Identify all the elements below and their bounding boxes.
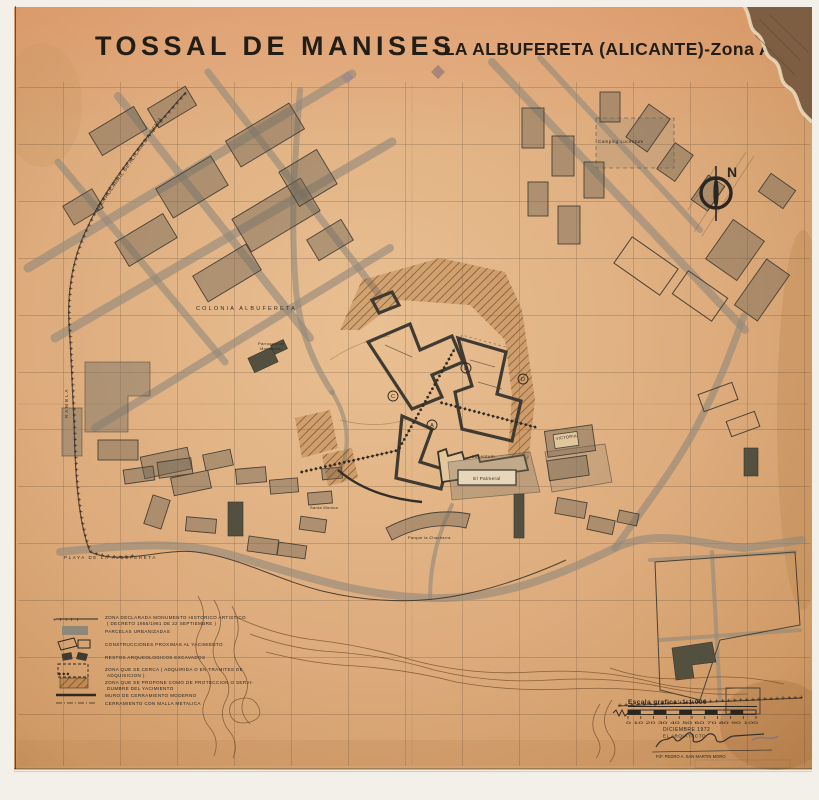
marker-d: D — [521, 377, 525, 383]
label-rambla: RAMBLA — [64, 387, 69, 418]
tower-building — [514, 494, 524, 538]
scanned-map-sheet: + + + + + + + + + + + + + + + + + + + + … — [0, 0, 819, 800]
legend-label: ( DECRETO 1955/1961 DE 22 SEPTIEMBRE ) — [107, 621, 216, 626]
title-main: TOSSAL DE MANISES — [95, 31, 456, 61]
legend-label: CONSTRUCCIONES PROXIMAS AL YACIMIENTO — [105, 642, 223, 647]
stamp-date: DICIEMBRE 1972 — [663, 727, 710, 733]
label-playa-albufereta: PLAYA DE LA ALBUFERETA — [64, 555, 157, 560]
legend-label: ZONA QUE SE CERCA ( ADQUIRIDA O EN TRAMI… — [105, 667, 243, 672]
legend-symbol-diamonds: ◆ ◆ ◆ — [58, 671, 70, 676]
legend-label: ZONA DECLARADA MONUMENTO HISTORICO ARTIS… — [105, 615, 246, 620]
legend-label: RESTOS ARQUEOLOGICOS EXCAVADOS — [105, 655, 205, 660]
legend-symbol-plus-line: + + + + + — [53, 617, 79, 624]
legend-label: MURO DE CERRAMIENTO MODERNO — [105, 693, 197, 698]
label-colonia-albufereta: COLONIA ALBUFERETA — [196, 306, 297, 312]
legend-label: CERRAMIENTO CON MALLA METALICA — [105, 701, 201, 706]
label-parroquia-2: Montserrat — [260, 346, 283, 351]
marker-c: C — [391, 394, 395, 400]
legend-label: ADQUISICION ) — [107, 673, 145, 678]
legend-symbol-gray-parcel — [62, 626, 88, 635]
marker-a: A — [430, 423, 434, 429]
scale-tick-numbers: 0 10 20 30 40 50 60 70 80 90 100 — [626, 720, 760, 725]
legend-label: ZONA QUE SE PROPONE COMO DE PROTECCION O… — [105, 680, 253, 685]
label-parque: Parque la Chacharra — [408, 535, 451, 540]
legend-label: PARCELAS URBANIZADAS — [105, 629, 170, 634]
label-camping-lucentum: Camping Lucentum — [598, 139, 643, 144]
legend-label: DUMBRE DEL YACIMIENTO — [107, 686, 174, 691]
label-lucentum: Lucentum — [472, 454, 495, 459]
map-canvas: + + + + + + + + + + + + + + + + + + + + … — [0, 0, 819, 800]
compass-north-label: N — [727, 164, 737, 180]
scale-label: Escala grafica: 1:1.000 — [628, 699, 707, 706]
label-santa-monica: Santa Monica — [310, 505, 339, 510]
stamp-architect-name: Fdº: PEDRO A. SAN MARTIN MORO — [656, 754, 726, 759]
marker-b: B — [464, 366, 468, 372]
label-el-palmeral: El Palmeral — [473, 476, 500, 481]
